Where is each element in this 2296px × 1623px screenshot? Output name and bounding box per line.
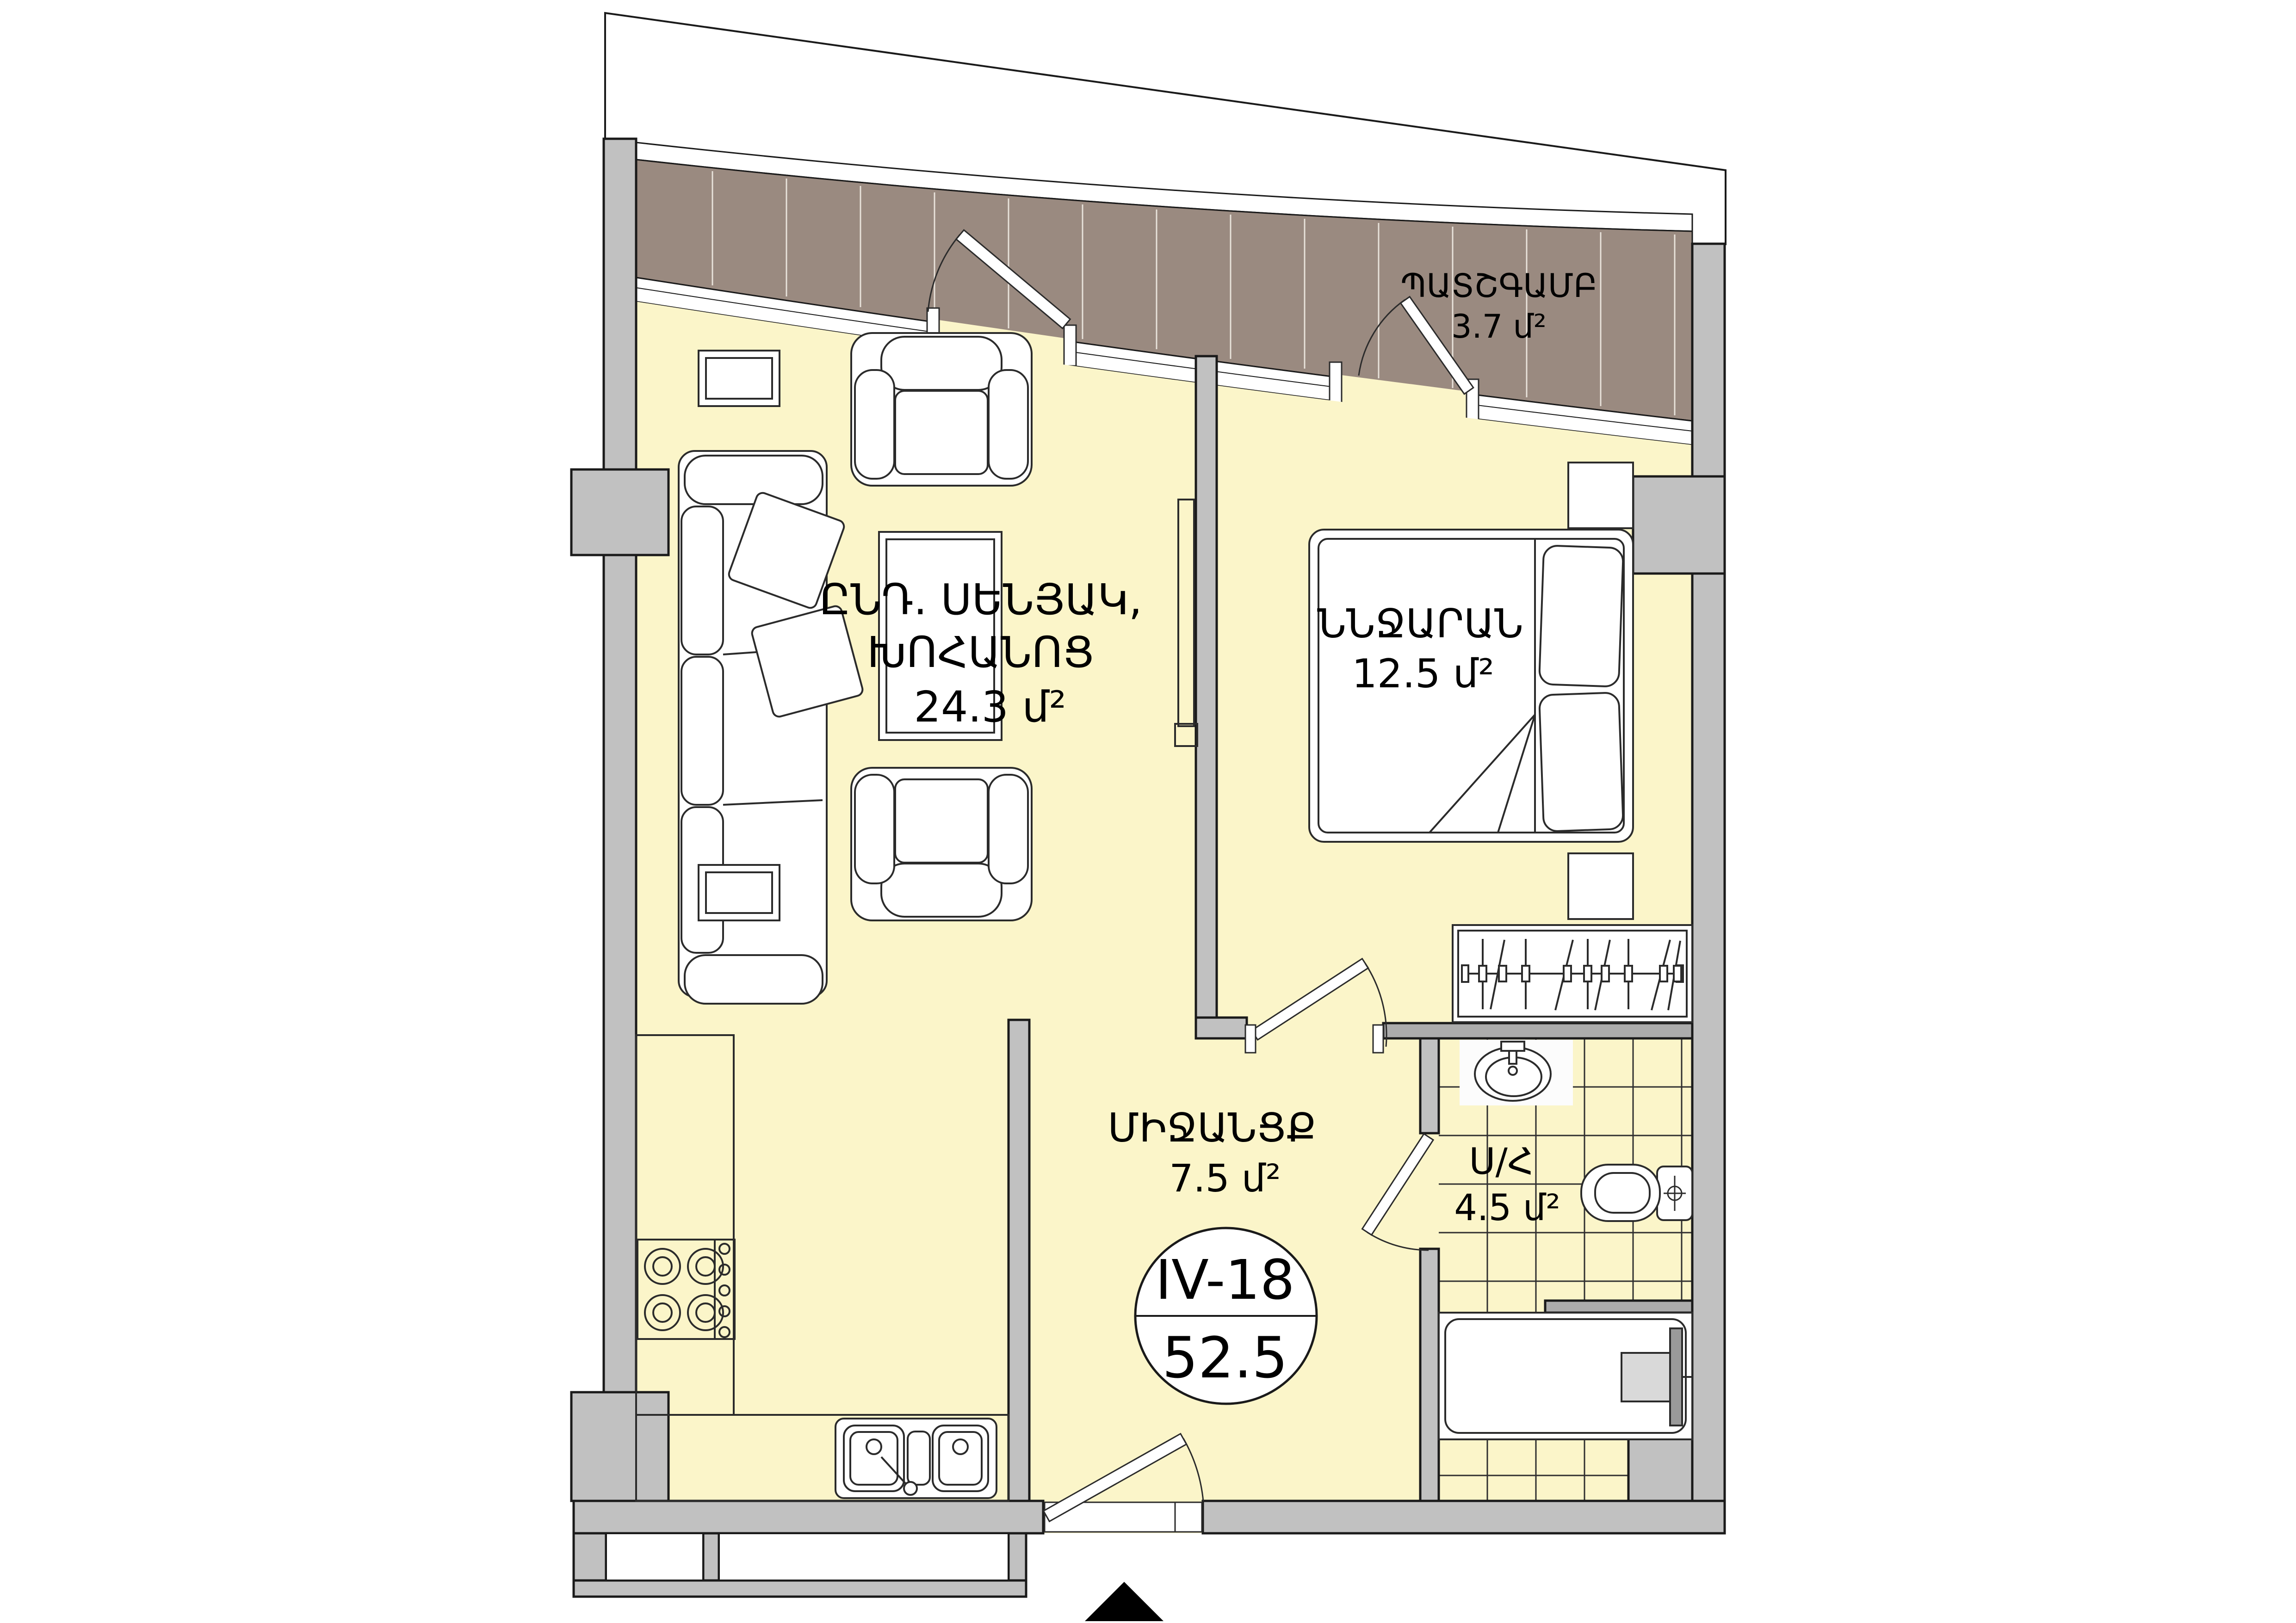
lower-parapet <box>574 1580 1026 1597</box>
bed-pillow-1 <box>1539 545 1623 687</box>
living-area: 24.3 մ² <box>914 682 1066 732</box>
lower-pier-right <box>1009 1533 1026 1580</box>
lower-window-2 <box>719 1533 1009 1580</box>
unit-number: IV-18 <box>1155 1248 1294 1312</box>
tub-fixture-bar <box>1670 1328 1682 1426</box>
tub-fixture-box <box>1621 1353 1670 1401</box>
entrance-marker-icon <box>1085 1582 1163 1621</box>
bath-west-wall-lower <box>1420 1249 1439 1501</box>
bed-pillow-2 <box>1539 692 1623 832</box>
hallway-label: ՄԻՋԱՆՑՔ <box>1108 1105 1316 1151</box>
toilet <box>1581 1165 1692 1221</box>
bathtub <box>1439 1313 1692 1439</box>
left-wall <box>604 139 636 1501</box>
kitchen-sink <box>835 1419 996 1498</box>
tub-divider-wall <box>1545 1301 1692 1313</box>
bathroom-label: Ս/Հ <box>1469 1141 1533 1183</box>
lower-window-1 <box>606 1533 703 1580</box>
armchair-bottom <box>851 768 1032 920</box>
lower-pier-mid <box>703 1533 719 1580</box>
wardrobe <box>1453 925 1692 1022</box>
side-table-bottom <box>699 865 780 920</box>
unit-badge: IV-18 52.5 <box>1135 1228 1317 1404</box>
lower-windows <box>606 1533 1009 1580</box>
left-wall-pilaster <box>571 469 668 555</box>
bottom-wall-right <box>1203 1501 1725 1533</box>
living-bedroom-partition <box>1196 356 1217 1038</box>
bedroom-bath-wall <box>1383 1023 1692 1038</box>
bedroom-area: 12.5 մ² <box>1352 651 1494 697</box>
left-wall-pilaster-bottom <box>571 1392 668 1501</box>
right-wall <box>1692 244 1725 1501</box>
partition-foot <box>1196 1018 1247 1038</box>
bath-sink <box>1460 1040 1573 1105</box>
nightstand-bottom <box>1568 853 1633 919</box>
unit-total-area: 52.5 <box>1162 1325 1288 1391</box>
bathroom-area: 4.5 մ² <box>1454 1187 1560 1229</box>
floor-plan-page: ՊԱՏՇԳԱՄԲ 3.7 մ² ԸՆԴ. ՍԵՆՅԱԿ, ԽՈՀԱՆՈՑ 24.… <box>0 0 2296 1623</box>
floor-plan-svg: ՊԱՏՇԳԱՄԲ 3.7 մ² ԸՆԴ. ՍԵՆՅԱԿ, ԽՈՀԱՆՈՑ 24.… <box>0 0 2296 1623</box>
side-table-top <box>699 351 780 406</box>
living-label-line2: ԽՈՀԱՆՈՑ <box>867 628 1094 677</box>
bottom-wall-left <box>574 1501 1043 1533</box>
armchair-top <box>851 333 1032 486</box>
bath-west-wall-upper <box>1420 1038 1439 1133</box>
nightstand-top <box>1568 463 1633 528</box>
balcony-area: 3.7 մ² <box>1451 308 1547 346</box>
balcony-label: ՊԱՏՇԳԱՄԲ <box>1400 267 1597 305</box>
bedroom-label: ՆՆՋԱՐԱՆ <box>1317 601 1523 647</box>
right-wall-pilaster <box>1633 476 1725 574</box>
living-label-line1: ԸՆԴ. ՍԵՆՅԱԿ, <box>819 575 1142 624</box>
kitchen-hall-partition <box>1009 1020 1029 1501</box>
hallway-area: 7.5 մ² <box>1169 1157 1281 1201</box>
